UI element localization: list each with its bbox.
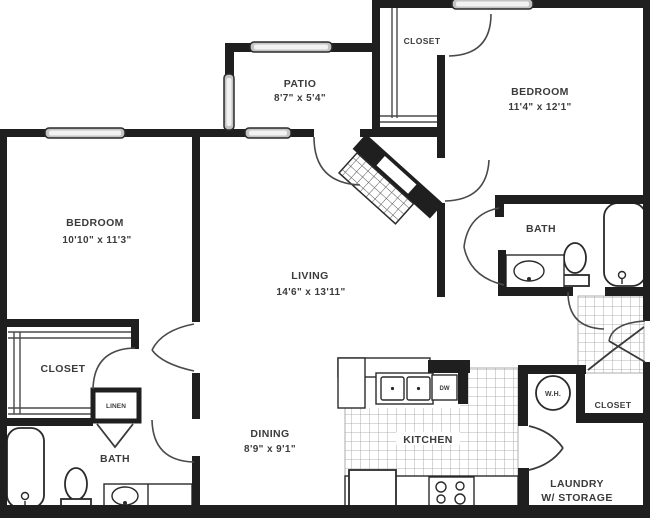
window	[224, 74, 234, 130]
dining-label: DINING	[250, 428, 289, 440]
stove	[429, 477, 474, 507]
living-label: LIVING	[291, 270, 328, 282]
refrigerator	[349, 470, 396, 508]
window	[452, 0, 533, 9]
patio-dims: 8'7" x 5'4"	[274, 93, 326, 104]
floor-plan-page: DW	[0, 0, 650, 518]
window	[250, 42, 332, 52]
living-dims: 14'6" x 13'11"	[276, 287, 345, 298]
closet-left-label: CLOSET	[41, 363, 86, 375]
linen-label: LINEN	[106, 403, 126, 410]
bedroom-right-dims: 11'4" x 12'1"	[508, 102, 571, 113]
bedroom-left-label: BEDROOM	[66, 217, 124, 229]
window	[245, 128, 291, 138]
laundry-label-2: W/ STORAGE	[541, 492, 612, 504]
vanity-right	[506, 255, 564, 289]
bath-right-label: BATH	[526, 223, 556, 235]
toilet-right	[561, 243, 589, 286]
bedroom-right-label: BEDROOM	[511, 86, 569, 98]
patio-label: PATIO	[284, 78, 317, 90]
dining-dims: 8'9" x 9'1"	[244, 444, 296, 455]
bedroom-left-dims: 10'10" x 11'3"	[62, 235, 131, 246]
window	[45, 128, 125, 138]
closet-top-label: CLOSET	[404, 36, 441, 46]
kitchen-label: KITCHEN	[403, 434, 452, 446]
bath-left-label: BATH	[100, 453, 130, 465]
water-heater: W.H.	[536, 376, 570, 410]
water-heater-label: W.H.	[545, 391, 561, 398]
kitchen-label-group: KITCHEN	[396, 432, 460, 446]
closet-entry-label: CLOSET	[595, 400, 632, 410]
dishwasher-label: DW	[440, 386, 450, 392]
laundry-label: LAUNDRY	[550, 478, 604, 490]
linen-closet: LINEN	[93, 390, 139, 421]
bathtub-left	[7, 428, 44, 508]
floor-plan-canvas: DW	[0, 0, 650, 518]
bathtub-right	[604, 203, 646, 286]
